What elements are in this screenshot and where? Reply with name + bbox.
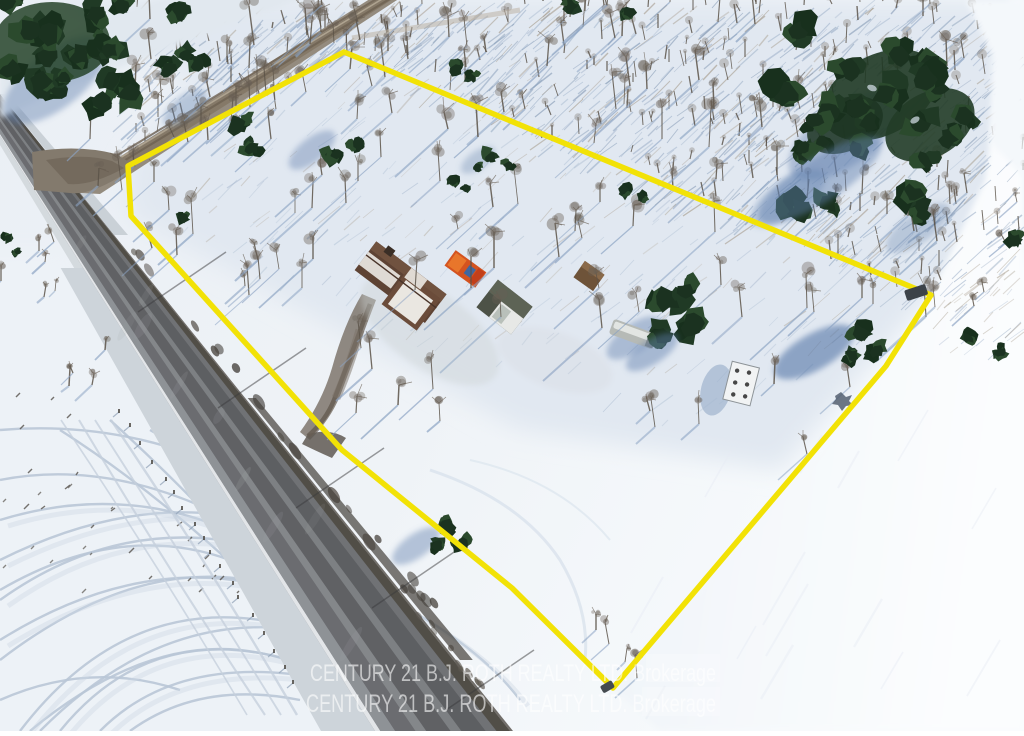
svg-text:CENTURY 21 B.J. ROTH REALTY LT: CENTURY 21 B.J. ROTH REALTY LTD. Brokera… [310,660,716,687]
svg-text:CENTURY 21 B.J. ROTH REALTY LT: CENTURY 21 B.J. ROTH REALTY LTD. Brokera… [306,690,716,718]
